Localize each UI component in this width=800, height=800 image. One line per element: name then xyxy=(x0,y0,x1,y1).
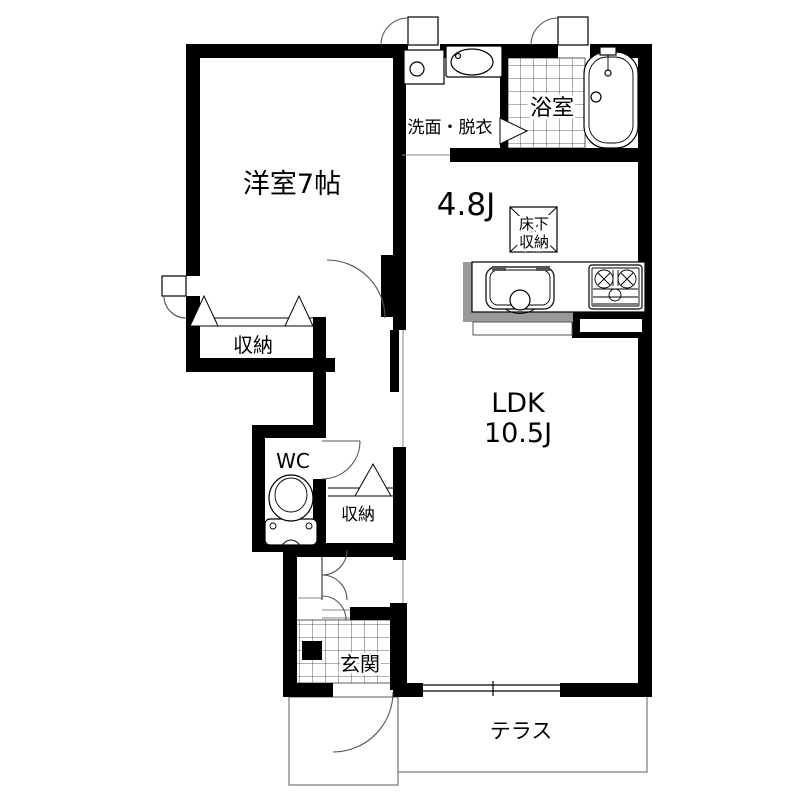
floor-plan-page: 床下 収納 洋室7帖 洗面・脱衣 浴室 4.8J LDK 10.5J 収納 WC… xyxy=(0,0,800,800)
label-washroom: 洗面・脱衣 xyxy=(408,118,493,138)
left-exterior-door xyxy=(162,276,186,318)
svg-text:収納: 収納 xyxy=(519,233,549,251)
stove xyxy=(589,265,642,309)
washing-machine-pan xyxy=(404,50,444,84)
counter-pass-through xyxy=(473,322,572,335)
closet2-folding-door xyxy=(328,464,393,496)
svg-text:床下: 床下 xyxy=(519,215,549,233)
terrace-window xyxy=(423,681,560,697)
label-ldk-1: LDK xyxy=(491,388,546,419)
closet1-folding-doors xyxy=(190,296,313,326)
label-closet1: 収納 xyxy=(233,333,273,357)
toilet xyxy=(265,475,317,545)
washroom-exterior-door xyxy=(381,17,438,45)
bathtub xyxy=(584,47,638,148)
underfloor-storage: 床下 収納 xyxy=(510,207,557,252)
bathroom-exterior-door xyxy=(531,17,588,45)
wc-door-arc xyxy=(322,441,360,479)
label-closet2: 収納 xyxy=(341,505,375,525)
label-western-room: 洋室7帖 xyxy=(243,169,341,200)
washbasin xyxy=(446,46,502,77)
entrance-porch xyxy=(289,697,398,785)
label-dining-kitchen: 4.8J xyxy=(437,187,495,223)
counter-wall-block xyxy=(572,312,647,338)
entrance-hall-door-arc xyxy=(322,596,346,620)
western-room-door-arc xyxy=(327,260,385,318)
label-ldk-2: 10.5J xyxy=(484,418,552,449)
kitchen-sink xyxy=(486,266,554,314)
label-terrace: テラス xyxy=(490,719,553,743)
label-bathroom: 浴室 xyxy=(530,96,574,121)
label-entrance: 玄関 xyxy=(340,652,380,676)
label-wc: WC xyxy=(276,449,310,473)
sliding-door-panel xyxy=(390,330,399,392)
floor-plan: 床下 収納 洋室7帖 洗面・脱衣 浴室 4.8J LDK 10.5J 収納 WC… xyxy=(0,0,800,800)
